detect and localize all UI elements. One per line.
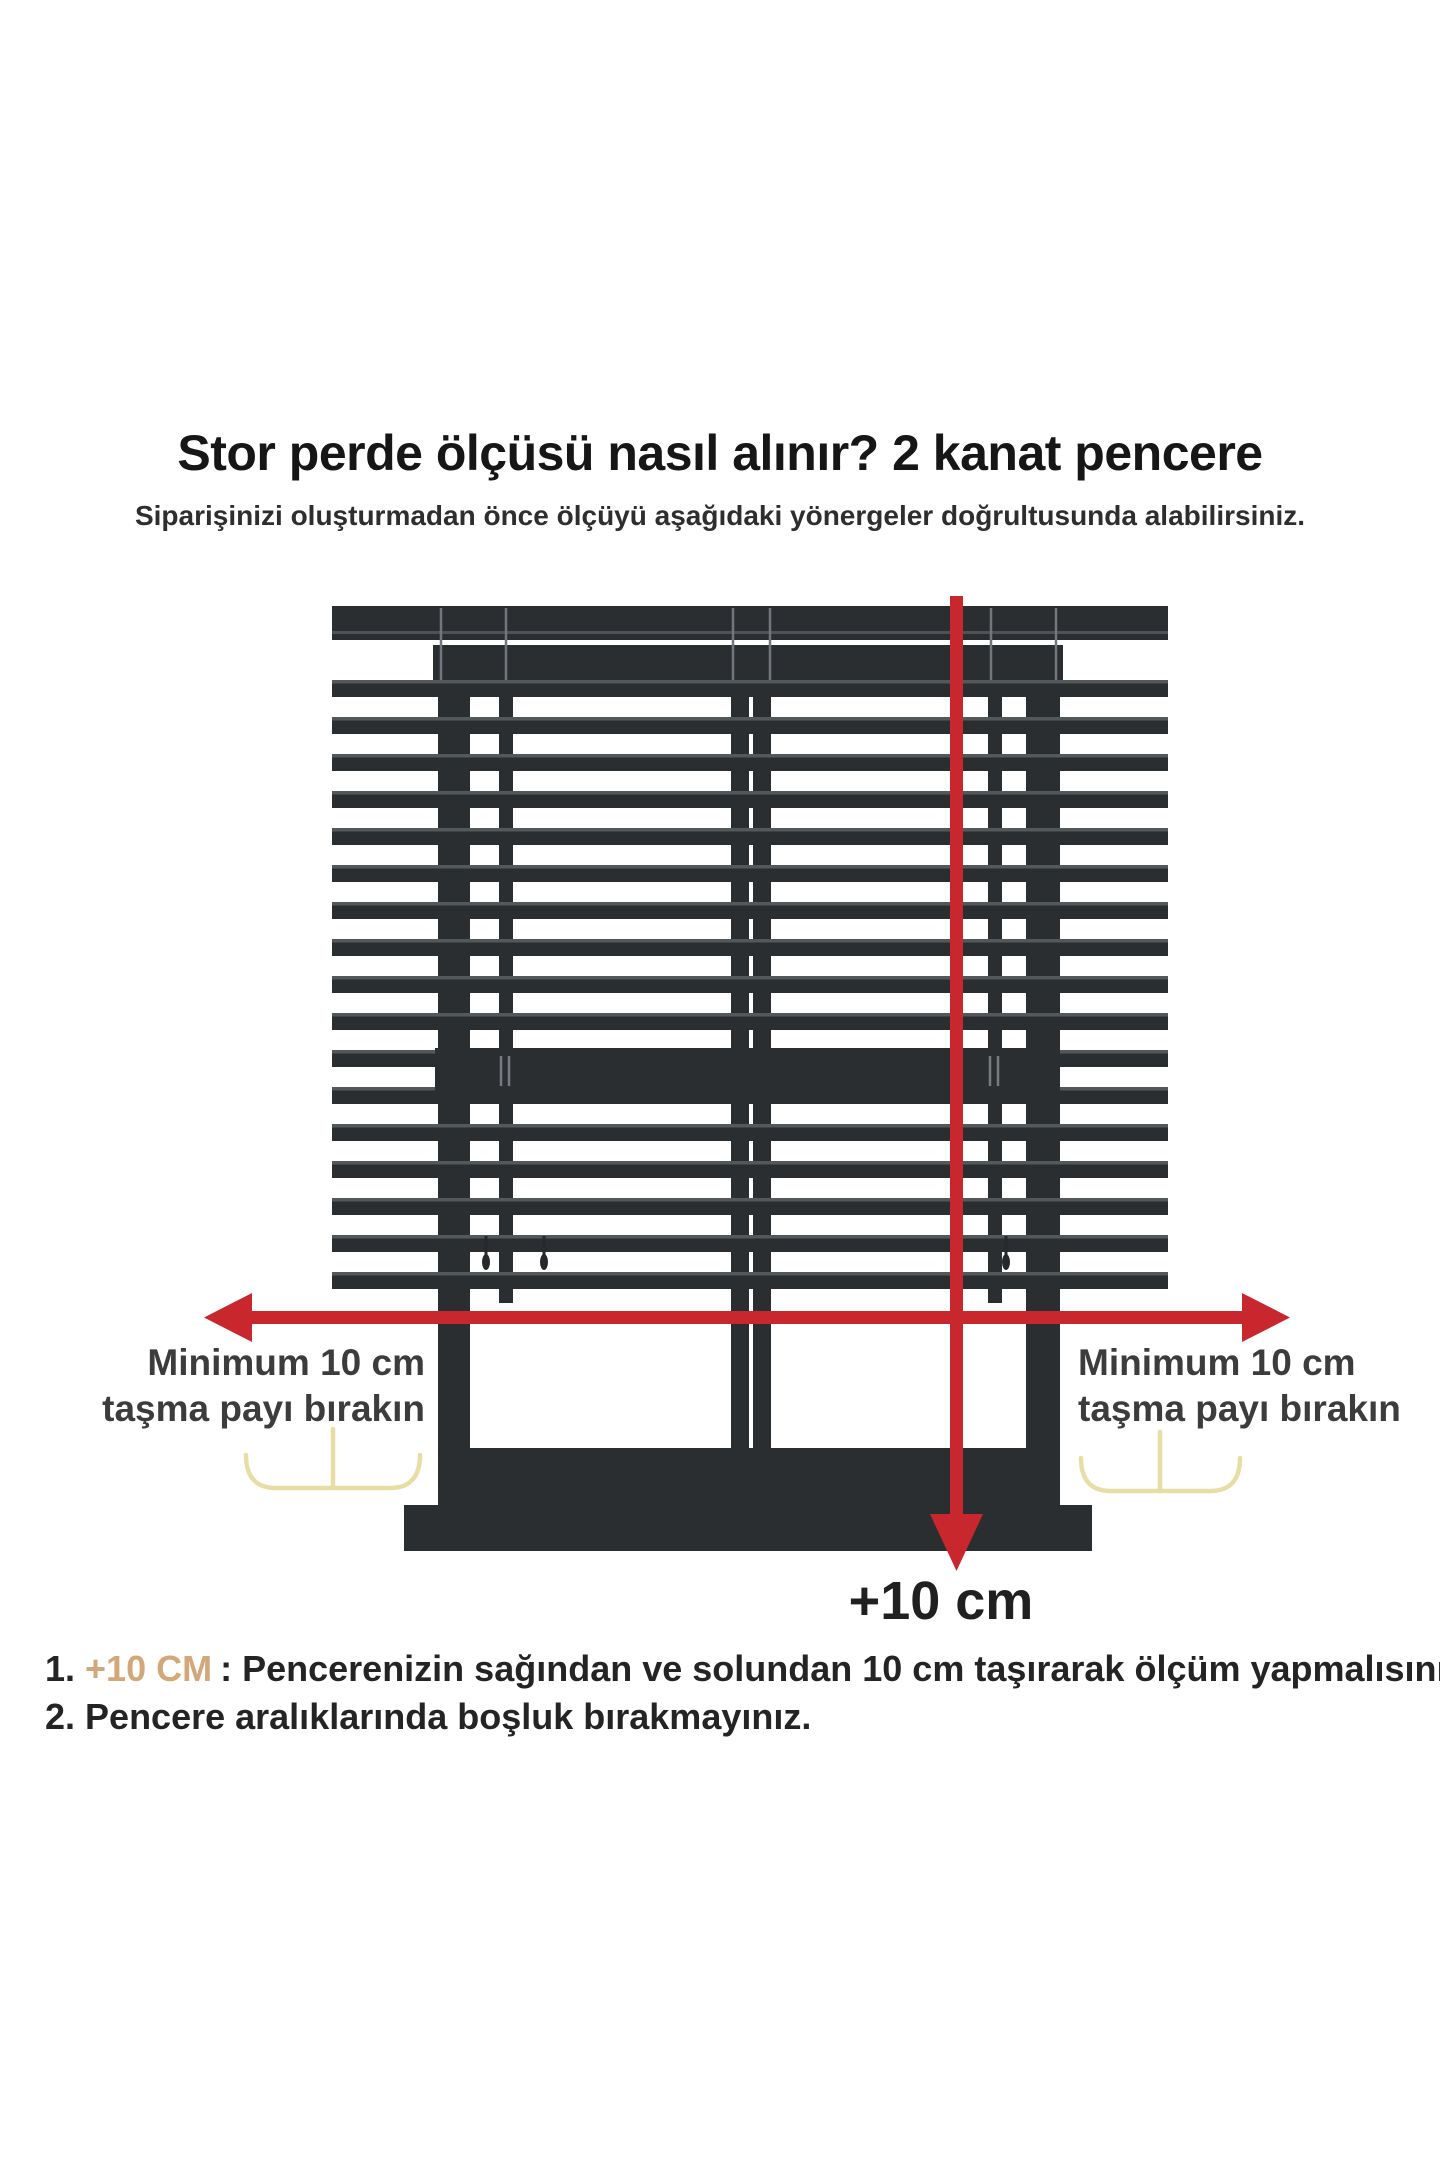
left-overhang-label: Minimum 10 cm taşma payı bırakın bbox=[55, 1340, 425, 1432]
overhang-bracket-right bbox=[1081, 1432, 1240, 1491]
width-arrow-head-right bbox=[1242, 1293, 1290, 1342]
instruction-item-1: 1.+10 CM:Pencerenizin sağından ve solund… bbox=[45, 1645, 1425, 1693]
page-title: Stor perde ölçüsü nasıl alınır? 2 kanat … bbox=[0, 424, 1440, 482]
blind-slat-edge bbox=[332, 717, 1168, 721]
instruction-2-text: Pencere aralıklarında boşluk bırakmayını… bbox=[85, 1696, 811, 1737]
blind-slat-edge bbox=[332, 1272, 1168, 1276]
window-top-rail bbox=[433, 645, 1063, 680]
overhang-bracket-left bbox=[246, 1429, 420, 1488]
width-arrow-shaft bbox=[250, 1311, 1242, 1324]
blind-slat-edge bbox=[332, 865, 1168, 869]
instruction-item-2: 2.Pencere aralıklarında boşluk bırakmayı… bbox=[45, 1693, 1425, 1741]
window-sill bbox=[404, 1505, 1092, 1551]
instruction-1-separator: : bbox=[220, 1648, 232, 1689]
instruction-1-highlight: +10 CM bbox=[85, 1648, 212, 1689]
right-overhang-label: Minimum 10 cm taşma payı bırakın bbox=[1078, 1340, 1438, 1432]
height-arrow-shaft bbox=[950, 596, 963, 1516]
right-overhang-label-line2: taşma payı bırakın bbox=[1078, 1386, 1438, 1432]
blind-headrail bbox=[332, 606, 1168, 640]
instruction-1-number: 1. bbox=[45, 1648, 75, 1689]
blind-slat-edge bbox=[332, 680, 1168, 684]
blind-slat-edge bbox=[332, 939, 1168, 943]
blind-slat-edge bbox=[332, 1161, 1168, 1165]
instruction-2-number: 2. bbox=[45, 1696, 75, 1737]
blind-slat-edge bbox=[332, 1198, 1168, 1202]
blind-slat-edge bbox=[332, 1124, 1168, 1128]
instructions-list: 1.+10 CM:Pencerenizin sağından ve solund… bbox=[45, 1645, 1425, 1741]
window-blind-diagram bbox=[0, 0, 1440, 2160]
infographic-canvas: Stor perde ölçüsü nasıl alınır? 2 kanat … bbox=[0, 0, 1440, 2160]
window-bottom-rail bbox=[438, 1448, 1060, 1505]
blind-slat-edge bbox=[332, 828, 1168, 832]
right-overhang-label-line1: Minimum 10 cm bbox=[1078, 1340, 1438, 1386]
blind-slat-edge bbox=[332, 976, 1168, 980]
page-subtitle: Siparişinizi oluşturmadan önce ölçüyü aş… bbox=[0, 500, 1440, 532]
blind-slat-edge bbox=[332, 1013, 1168, 1017]
blind-slat-edge bbox=[332, 902, 1168, 906]
blind-headrail-edge bbox=[332, 631, 1168, 634]
left-overhang-label-line2: taşma payı bırakın bbox=[55, 1386, 425, 1432]
width-arrow-head-left bbox=[204, 1293, 252, 1342]
blind-slat-edge bbox=[332, 791, 1168, 795]
blind-slat-edge bbox=[332, 1235, 1168, 1239]
left-overhang-label-line1: Minimum 10 cm bbox=[55, 1340, 425, 1386]
instruction-1-text: Pencerenizin sağından ve solundan 10 cm … bbox=[242, 1648, 1440, 1689]
blind-middle-band bbox=[435, 1048, 1060, 1092]
blind-slat-edge bbox=[332, 754, 1168, 758]
bottom-arrow-label: +10 cm bbox=[791, 1570, 1091, 1632]
